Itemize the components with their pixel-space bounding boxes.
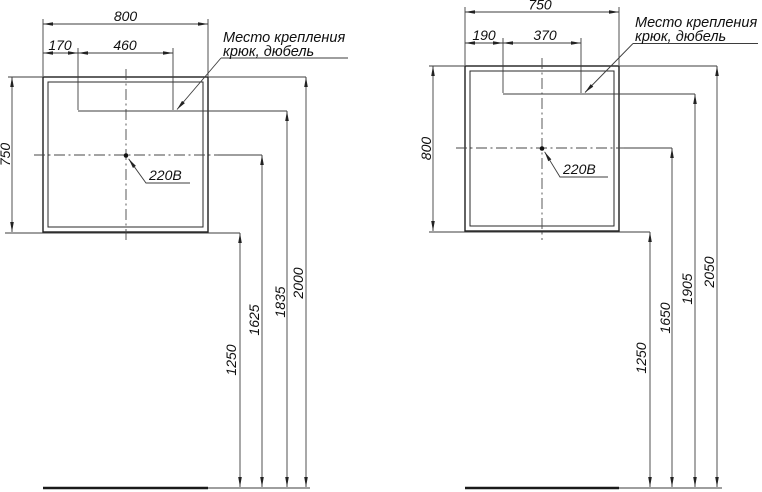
dim-label-height: 800 (418, 137, 434, 161)
mirror-mounting-drawing: 220В Место крепления крюк, дюбель 800 17… (0, 0, 762, 492)
dim-label-floor-hook: 1905 (679, 273, 695, 304)
dim-label-hook-spacing: 370 (533, 27, 557, 43)
dim-label-height: 750 (0, 143, 13, 167)
dimension-lines (12, 24, 306, 487)
power-label: 220В (562, 161, 596, 177)
dim-label-floor-outlet: 1650 (657, 302, 673, 333)
mount-note-line2: крюк, дюбель (635, 29, 726, 45)
dim-label-width: 800 (114, 8, 138, 24)
dim-label-floor-bottom: 1250 (633, 342, 649, 373)
dim-label-width: 750 (528, 0, 552, 13)
left-diagram: 220В Место крепления крюк, дюбель 800 17… (0, 8, 348, 488)
dim-label-hook-spacing: 460 (113, 37, 137, 53)
dim-label-floor-bottom: 1250 (223, 344, 239, 375)
dim-label-hook-offset: 170 (48, 37, 72, 53)
outlet-point (540, 146, 545, 151)
dim-label-hook-offset: 190 (472, 27, 496, 43)
mount-leader-line (585, 44, 633, 93)
technical-drawing-canvas: 220В Место крепления крюк, дюбель 800 17… (0, 0, 762, 492)
power-label: 220В (148, 167, 182, 183)
dimension-lines (433, 12, 717, 487)
dim-label-floor-hook: 1835 (272, 286, 288, 317)
dim-label-floor-top: 2000 (290, 267, 306, 299)
mount-note-line2: крюк, дюбель (223, 44, 314, 60)
dim-label-floor-top: 2050 (701, 256, 717, 288)
mount-leader-line (177, 58, 221, 110)
dim-label-floor-outlet: 1625 (246, 304, 262, 335)
right-diagram: 220В Место крепления крюк, дюбель 750 19… (418, 0, 758, 488)
outlet-point (124, 153, 129, 158)
